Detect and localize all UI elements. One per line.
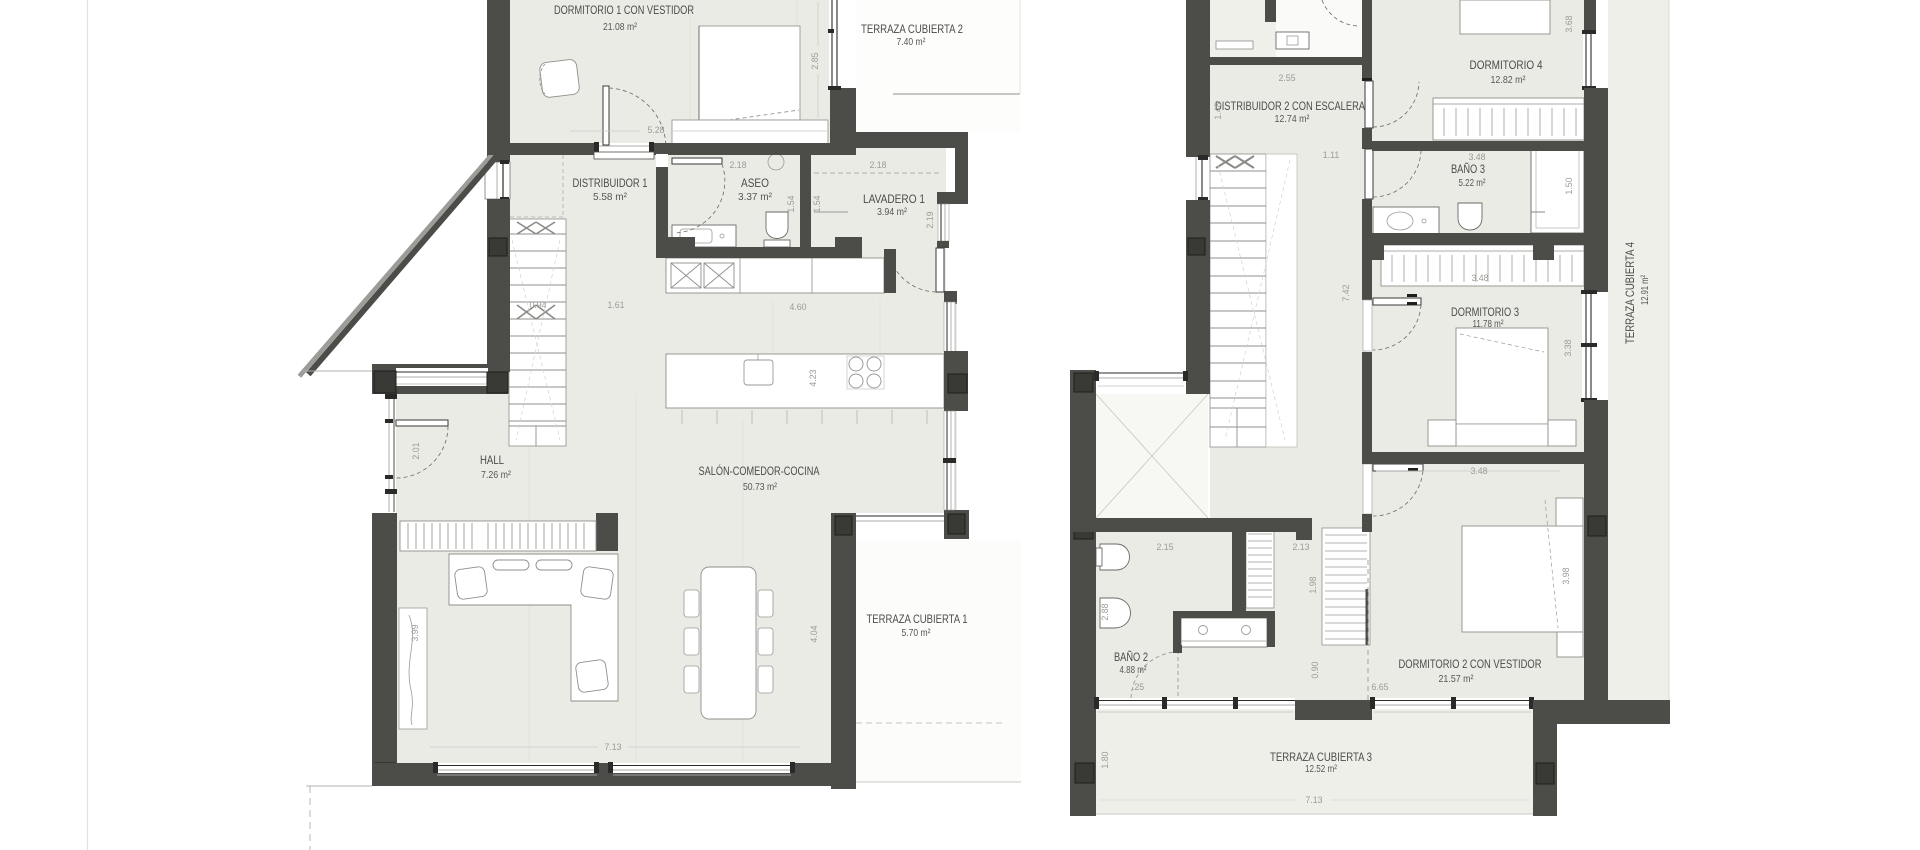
svg-text:7.13: 7.13 [1305,795,1322,805]
svg-text:0.90: 0.90 [1310,661,1320,678]
svg-text:BAÑO 2: BAÑO 2 [1114,650,1148,664]
svg-text:TERRAZA CUBIERTA 3: TERRAZA CUBIERTA 3 [1270,750,1372,764]
svg-text:2.85: 2.85 [810,52,820,69]
svg-text:TERRAZA CUBIERTA 4: TERRAZA CUBIERTA 4 [1623,242,1637,344]
svg-text:TERRAZA CUBIERTA 1: TERRAZA CUBIERTA 1 [867,612,968,626]
svg-text:HALL: HALL [480,453,504,467]
svg-text:SALÓN-COMEDOR-COCINA: SALÓN-COMEDOR-COCINA [699,463,820,478]
svg-text:2.18: 2.18 [869,160,886,170]
svg-text:3.94 m²: 3.94 m² [877,206,907,218]
svg-text:0.94: 0.94 [529,300,546,310]
svg-text:12.82 m²: 12.82 m² [1491,74,1526,86]
svg-text:5.70 m²: 5.70 m² [902,627,931,639]
svg-text:3.48: 3.48 [1468,152,1485,162]
svg-text:2.13: 2.13 [1292,542,1309,552]
svg-text:12.52 m²: 12.52 m² [1305,763,1337,775]
svg-text:21.08 m²: 21.08 m² [603,21,637,33]
svg-text:11.78 m²: 11.78 m² [1473,318,1504,330]
svg-text:7.42: 7.42 [1341,284,1351,301]
svg-text:DORMITORIO 3: DORMITORIO 3 [1451,305,1519,319]
svg-text:2.88: 2.88 [1100,603,1110,620]
svg-text:6.65: 6.65 [1371,682,1388,692]
svg-text:DISTRIBUIDOR 2 CON ESCALERA: DISTRIBUIDOR 2 CON ESCALERA [1215,99,1365,113]
svg-text:3.37 m²: 3.37 m² [738,191,772,203]
svg-text:DORMITORIO 4: DORMITORIO 4 [1470,58,1543,72]
svg-text:4.60: 4.60 [789,302,806,312]
svg-text:7.40 m²: 7.40 m² [897,36,926,48]
svg-text:3.48: 3.48 [1470,466,1487,476]
svg-text:4.88 m²: 4.88 m² [1120,664,1147,676]
svg-text:5.28: 5.28 [647,125,664,135]
svg-text:TERRAZA CUBIERTA 2: TERRAZA CUBIERTA 2 [861,22,963,36]
svg-text:5.22 m²: 5.22 m² [1459,177,1486,189]
svg-text:3.98: 3.98 [1561,567,1571,584]
svg-text:21.57 m²: 21.57 m² [1439,673,1474,685]
svg-text:DISTRIBUIDOR 1: DISTRIBUIDOR 1 [573,176,648,190]
svg-text:3.38: 3.38 [1563,339,1573,356]
svg-text:1.48: 1.48 [1213,102,1223,119]
svg-text:2.01: 2.01 [411,442,421,459]
svg-text:3.48: 3.48 [1471,273,1488,283]
svg-text:7.26 m²: 7.26 m² [481,469,511,481]
svg-text:ASEO: ASEO [741,176,769,190]
svg-text:BAÑO 3: BAÑO 3 [1451,162,1485,176]
svg-text:5.58 m²: 5.58 m² [593,191,627,203]
svg-text:2.15: 2.15 [1156,542,1173,552]
svg-text:50.73 m²: 50.73 m² [743,481,777,493]
svg-text:1.98: 1.98 [1308,576,1318,593]
svg-text:3.68: 3.68 [1564,15,1574,32]
svg-text:DORMITORIO 1 CON VESTIDOR: DORMITORIO 1 CON VESTIDOR [554,3,694,17]
svg-text:1.61: 1.61 [607,300,624,310]
svg-text:2.19: 2.19 [925,211,935,228]
svg-text:2.18: 2.18 [729,160,746,170]
svg-text:.25: .25 [1132,682,1144,692]
svg-text:4.04: 4.04 [809,625,819,642]
svg-text:12.91 m²: 12.91 m² [1639,275,1651,305]
svg-text:4.23: 4.23 [808,369,818,386]
svg-text:3.99: 3.99 [410,624,420,641]
svg-text:2.55: 2.55 [1278,73,1295,83]
svg-text:1.50: 1.50 [1564,177,1574,194]
svg-text:12.74 m²: 12.74 m² [1275,113,1310,125]
svg-text:DORMITORIO 2 CON VESTIDOR: DORMITORIO 2 CON VESTIDOR [1399,657,1542,671]
svg-text:7.13: 7.13 [604,742,621,752]
svg-text:1.11: 1.11 [1323,150,1340,160]
svg-text:1.54: 1.54 [786,195,796,212]
svg-text:1.80: 1.80 [1100,751,1110,768]
svg-text:LAVADERO 1: LAVADERO 1 [863,192,925,206]
svg-text:1.54: 1.54 [812,195,822,212]
